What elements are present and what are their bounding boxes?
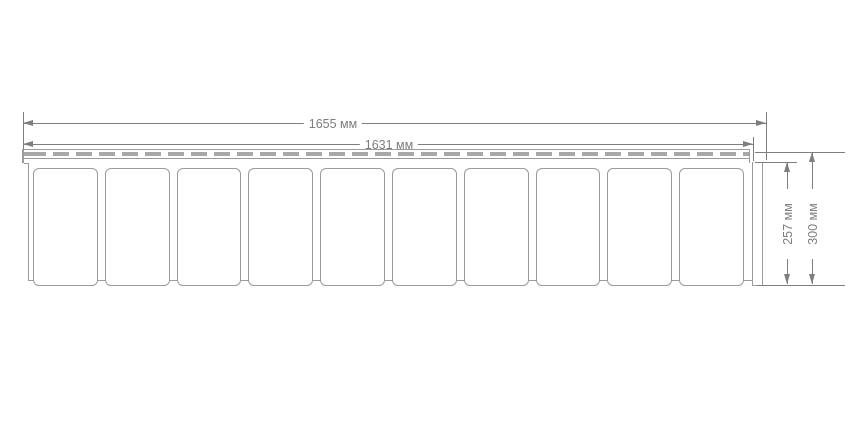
dim-arrowhead [743,141,753,147]
dim-arrowhead [784,162,790,172]
panel-right-edge [752,162,763,286]
dim-arrowhead [23,141,33,147]
extension-line-top-total-height [755,152,845,153]
perforation-row [24,150,749,159]
dim-label-total-height: 300 мм [805,189,821,259]
panel-tiles-row [33,168,744,286]
nail-strip [22,149,750,163]
dim-arrowhead [809,274,815,284]
panel-tile [464,168,529,286]
dim-label-inner-height: 257 мм [780,189,796,259]
extension-line-bottom [757,285,845,286]
panel-tile [177,168,242,286]
panel-tile [320,168,385,286]
panel-tile [679,168,744,286]
panel-technical-drawing: 1655 мм 1631 мм 257 мм 300 мм [0,0,850,425]
extension-line-top-inner-height [755,162,797,163]
dim-arrowhead [784,274,790,284]
dim-arrowhead [23,120,33,126]
panel-tile [248,168,313,286]
dim-label-total-length: 1655 мм [304,116,362,132]
dimension-line-total-length [23,123,766,124]
panel-tile [105,168,170,286]
panel-tile [536,168,601,286]
dim-arrowhead [756,120,766,126]
extension-line-right-inner [753,137,754,161]
panel-tile [607,168,672,286]
panel-tile [392,168,457,286]
panel-tile [33,168,98,286]
dim-arrowhead [809,152,815,162]
